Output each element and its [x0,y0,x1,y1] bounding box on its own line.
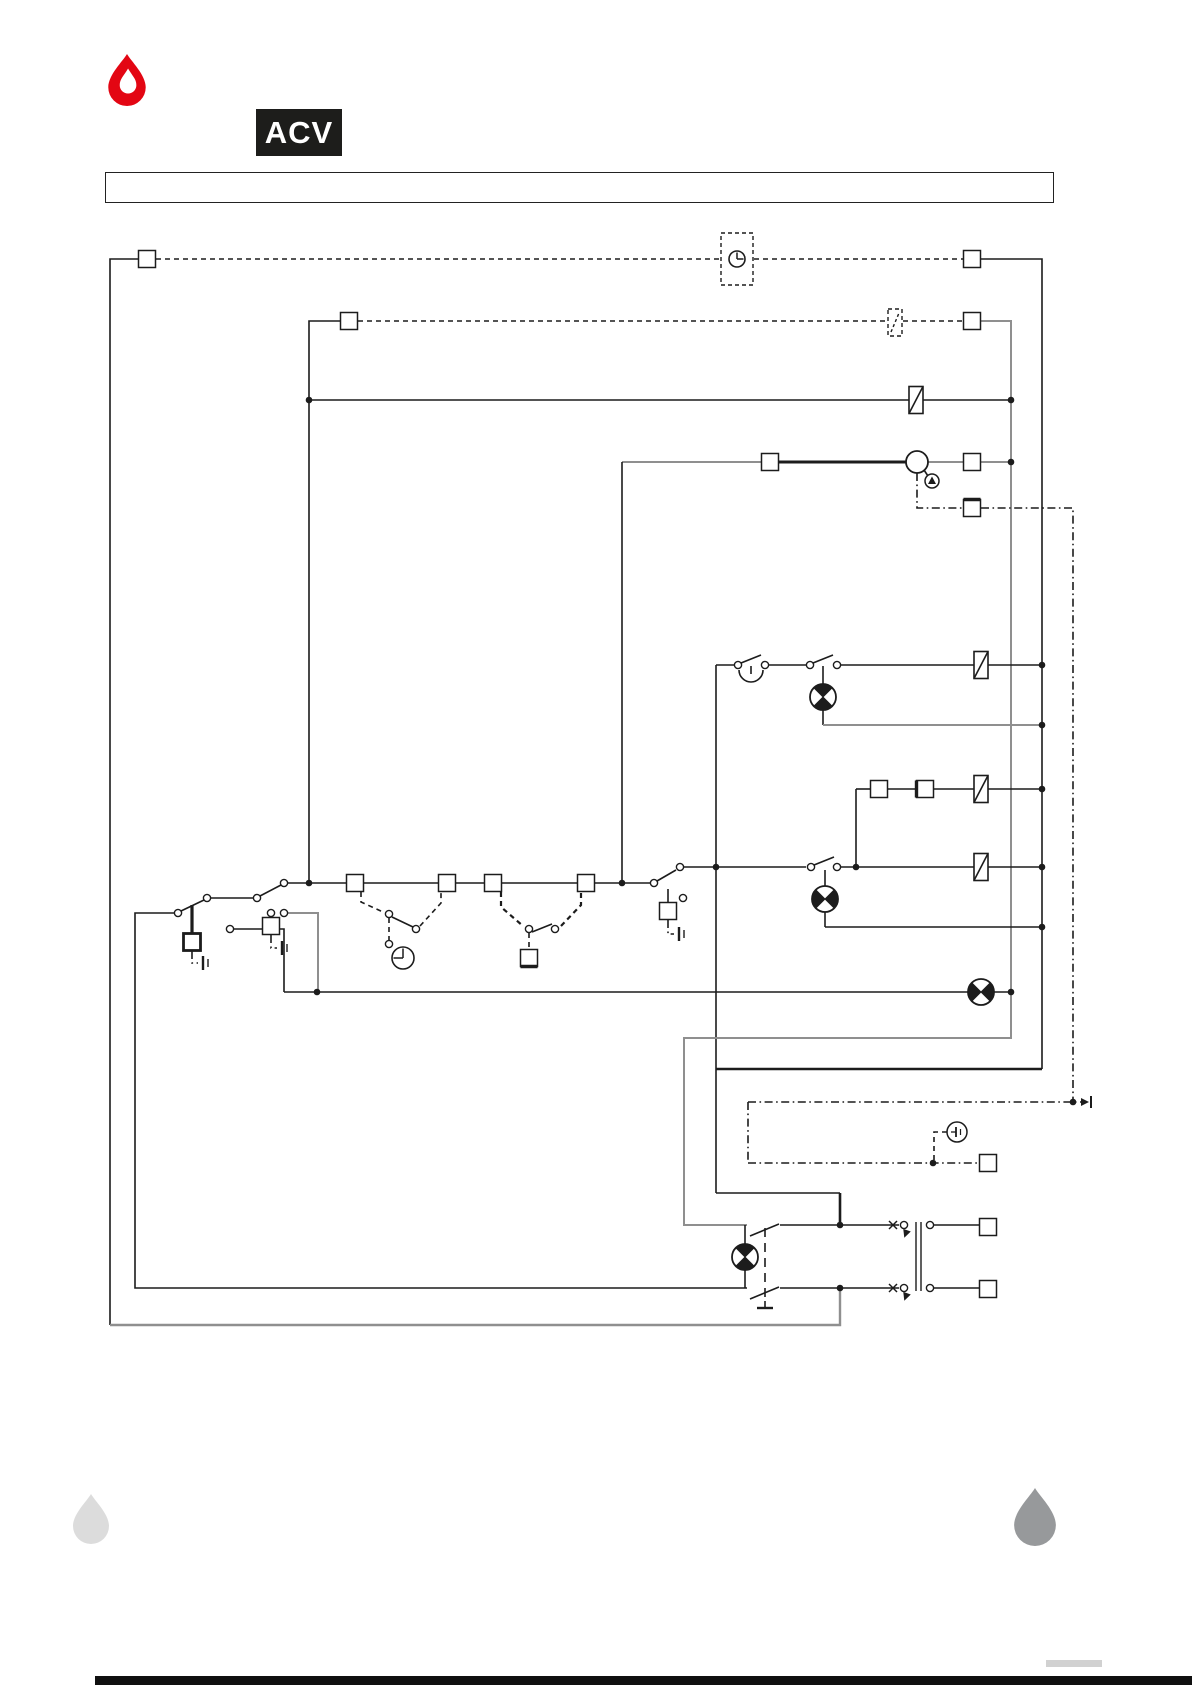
terminal-box [263,918,280,935]
contact-point [833,863,840,870]
contact-point [807,863,814,870]
arrow-icon [1081,1098,1089,1106]
terminal-box [964,313,981,330]
footer-rule [95,1676,1192,1685]
contact-point [806,661,813,668]
terminal-box [521,950,538,967]
wire [260,885,281,896]
terminal-box [980,1281,997,1298]
wire [420,892,441,926]
junction-dot [1070,1099,1077,1106]
wire [741,655,761,663]
contact-point [203,894,210,901]
junction-dot [713,864,720,871]
footer-right-flame-icon [1014,1488,1056,1546]
terminal-box [871,781,888,798]
junction-dot [837,1222,844,1229]
sensor-icon [947,1122,967,1142]
contact-point [900,1221,907,1228]
terminal-box [660,903,677,920]
contact-point [900,1284,907,1291]
wire [981,508,1073,1102]
terminal-box [917,781,934,798]
wire [392,917,413,927]
junction-dot [1039,924,1046,931]
terminal-box [964,500,981,517]
contact-point [226,925,233,932]
terminal-box [184,934,201,951]
contact-point [679,894,686,901]
contact-point [926,1284,933,1291]
wire [288,913,318,992]
footer-fineprint [1046,1660,1102,1667]
terminal-box [964,454,981,471]
contact-point [676,863,683,870]
terminal-box [439,875,456,892]
junction-dot [314,989,321,996]
junction-dot [1008,459,1015,466]
junction-dot [306,397,313,404]
wire [684,992,1011,1225]
terminal-box [980,1155,997,1172]
contact-point [280,879,287,886]
terminal-box [139,251,156,268]
contact-point [525,925,532,932]
boiler-circle-symbol [906,451,928,473]
terminal-box [762,454,779,471]
contact-point [650,879,657,886]
contact-point [174,909,181,916]
terminal-box [980,1219,997,1236]
wire [657,870,676,881]
junction-dot [1008,397,1015,404]
wire [501,892,523,926]
wire [532,924,552,932]
junction-dot [1008,989,1015,996]
contact-point [926,1221,933,1228]
junction-dot [853,864,860,871]
wire [668,920,674,934]
terminal-box [485,875,502,892]
wire [814,857,834,865]
junction-dot [930,1160,937,1167]
junction-dot [1039,662,1046,669]
wire [561,892,581,926]
terminal-box [578,875,595,892]
arrow-icon [901,1292,911,1302]
contact-point [253,894,260,901]
terminal-box [964,251,981,268]
dashed-option-box [888,309,902,336]
wire [234,929,284,992]
dashed-contact-icon [891,313,899,332]
junction-dot [619,880,626,887]
wire [361,892,383,912]
junction-dot [1039,864,1046,871]
junction-dot [306,880,313,887]
junction-dot [1039,722,1046,729]
wire [192,951,198,963]
contact-point [551,925,558,932]
wire [271,935,277,948]
footer-left-flame-icon [73,1492,109,1546]
contact-point [412,925,419,932]
arrow-icon [901,1229,911,1239]
contact-point [385,910,392,917]
junction-dot [837,1285,844,1292]
contact-point [267,909,274,916]
wire [917,473,963,508]
junction-dot [1039,786,1046,793]
contact-point [734,661,741,668]
contact-point [385,940,392,947]
contact-point [833,661,840,668]
wire [813,655,833,663]
contact-point [280,909,287,916]
terminal-box [341,313,358,330]
terminal-box [347,875,364,892]
contact-point [761,661,768,668]
wiring-diagram [0,0,1192,1685]
wire [135,913,747,1288]
wire [110,1289,840,1325]
wire [309,321,341,883]
wire [934,1132,947,1161]
